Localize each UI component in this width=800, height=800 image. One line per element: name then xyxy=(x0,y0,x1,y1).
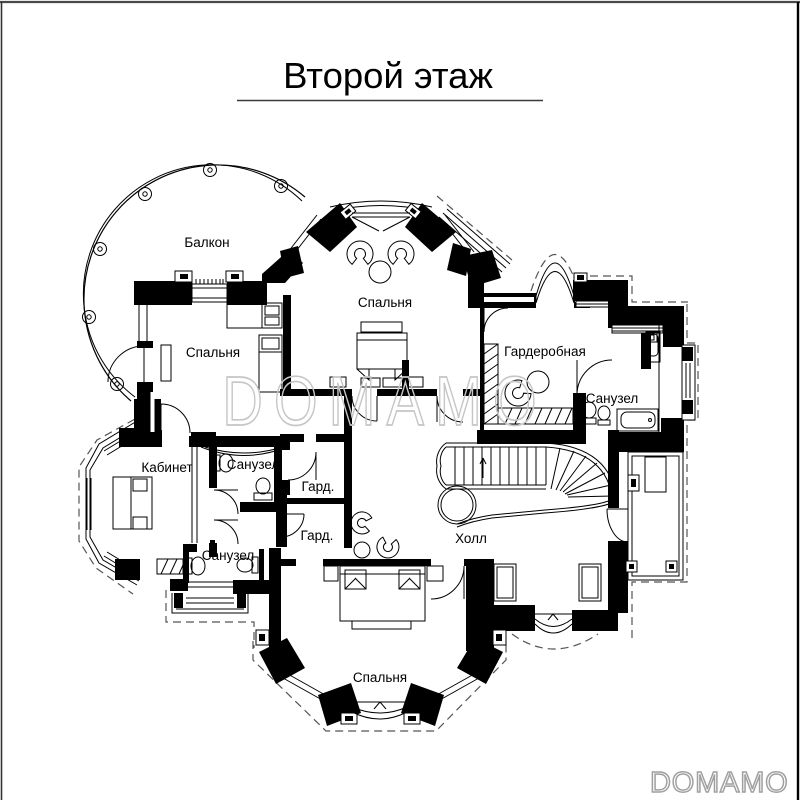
svg-text:Гард.: Гард. xyxy=(302,479,335,494)
svg-text:Балкон: Балкон xyxy=(184,235,229,250)
svg-text:Спальня: Спальня xyxy=(358,295,412,310)
svg-text:DOMAMO: DOMAMO xyxy=(650,767,789,799)
svg-text:Гард.: Гард. xyxy=(301,528,334,543)
svg-text:DOMAMO: DOMAMO xyxy=(222,363,547,440)
svg-text:Спальня: Спальня xyxy=(353,670,407,685)
svg-text:Холл: Холл xyxy=(455,531,487,546)
svg-text:Санузел: Санузел xyxy=(227,457,280,472)
svg-text:Санузел: Санузел xyxy=(586,391,639,406)
svg-text:Санузел: Санузел xyxy=(202,548,255,563)
svg-text:Гардеробная: Гардеробная xyxy=(504,344,586,359)
svg-text:Спальня: Спальня xyxy=(186,345,240,360)
svg-text:Кабинет: Кабинет xyxy=(141,460,192,475)
svg-text:Второй этаж: Второй этаж xyxy=(283,55,493,96)
